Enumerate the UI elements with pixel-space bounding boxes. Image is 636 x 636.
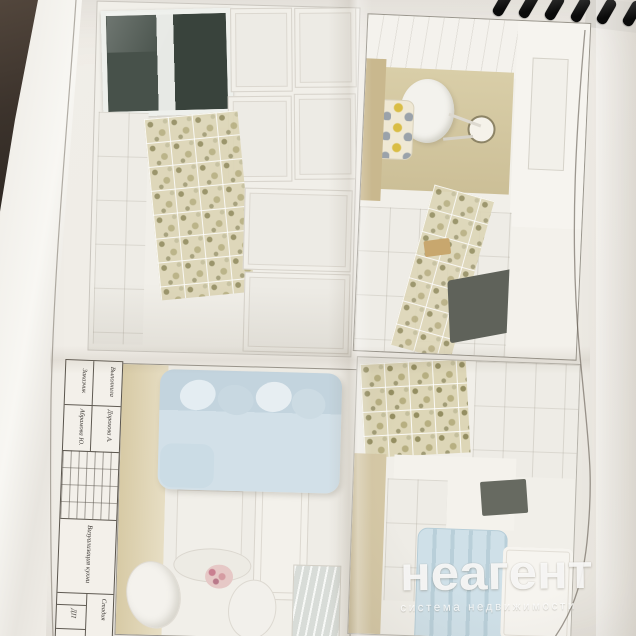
spiral-coil	[491, 0, 514, 18]
photo-of-printed-renderings: Выполнила Дорохова А. Заказчик Абрамова …	[0, 0, 636, 636]
titleblock-divider	[56, 628, 85, 630]
drawing-title: Визуализация кухни	[84, 525, 94, 583]
titleblock-role-value: Дорохова А.	[105, 410, 113, 443]
wooden-board	[423, 238, 451, 257]
spiral-coil	[517, 0, 540, 20]
render-kitchen-cabinets	[87, 1, 360, 358]
drawing-title-block: Выполнила Дорохова А. Заказчик Абрамова …	[55, 359, 124, 636]
spiral-binding	[0, 0, 636, 50]
watermark: неагент система недвижимости	[400, 548, 621, 615]
bright-cabinet-side	[506, 227, 582, 360]
sofa-armrest	[159, 443, 214, 488]
render-dining-area	[353, 13, 592, 360]
watermark-tagline: система недвижимости	[400, 600, 620, 615]
stage-value: ДП	[69, 608, 77, 618]
spiral-coil	[595, 0, 618, 26]
spiral-coil	[543, 0, 566, 22]
patchwork-tile-strip	[144, 110, 255, 300]
titleblock-divider	[57, 604, 86, 606]
flower-bouquet	[205, 564, 234, 589]
stage-label: Стадия	[99, 599, 107, 621]
titleblock-role-value: Абрамова Ю.	[77, 409, 85, 446]
page-crease-horizontal	[50, 346, 590, 374]
page-right-margin-shade	[596, 0, 636, 636]
wall-niche	[528, 58, 569, 171]
render-living-room	[114, 363, 357, 636]
titleblock-divider	[85, 593, 88, 636]
page-crease-vertical	[328, 0, 372, 636]
titleblock-grid	[60, 450, 119, 520]
spiral-coil	[569, 0, 592, 24]
watermark-brand: неагент	[400, 548, 629, 600]
spiral-coil	[621, 0, 636, 28]
